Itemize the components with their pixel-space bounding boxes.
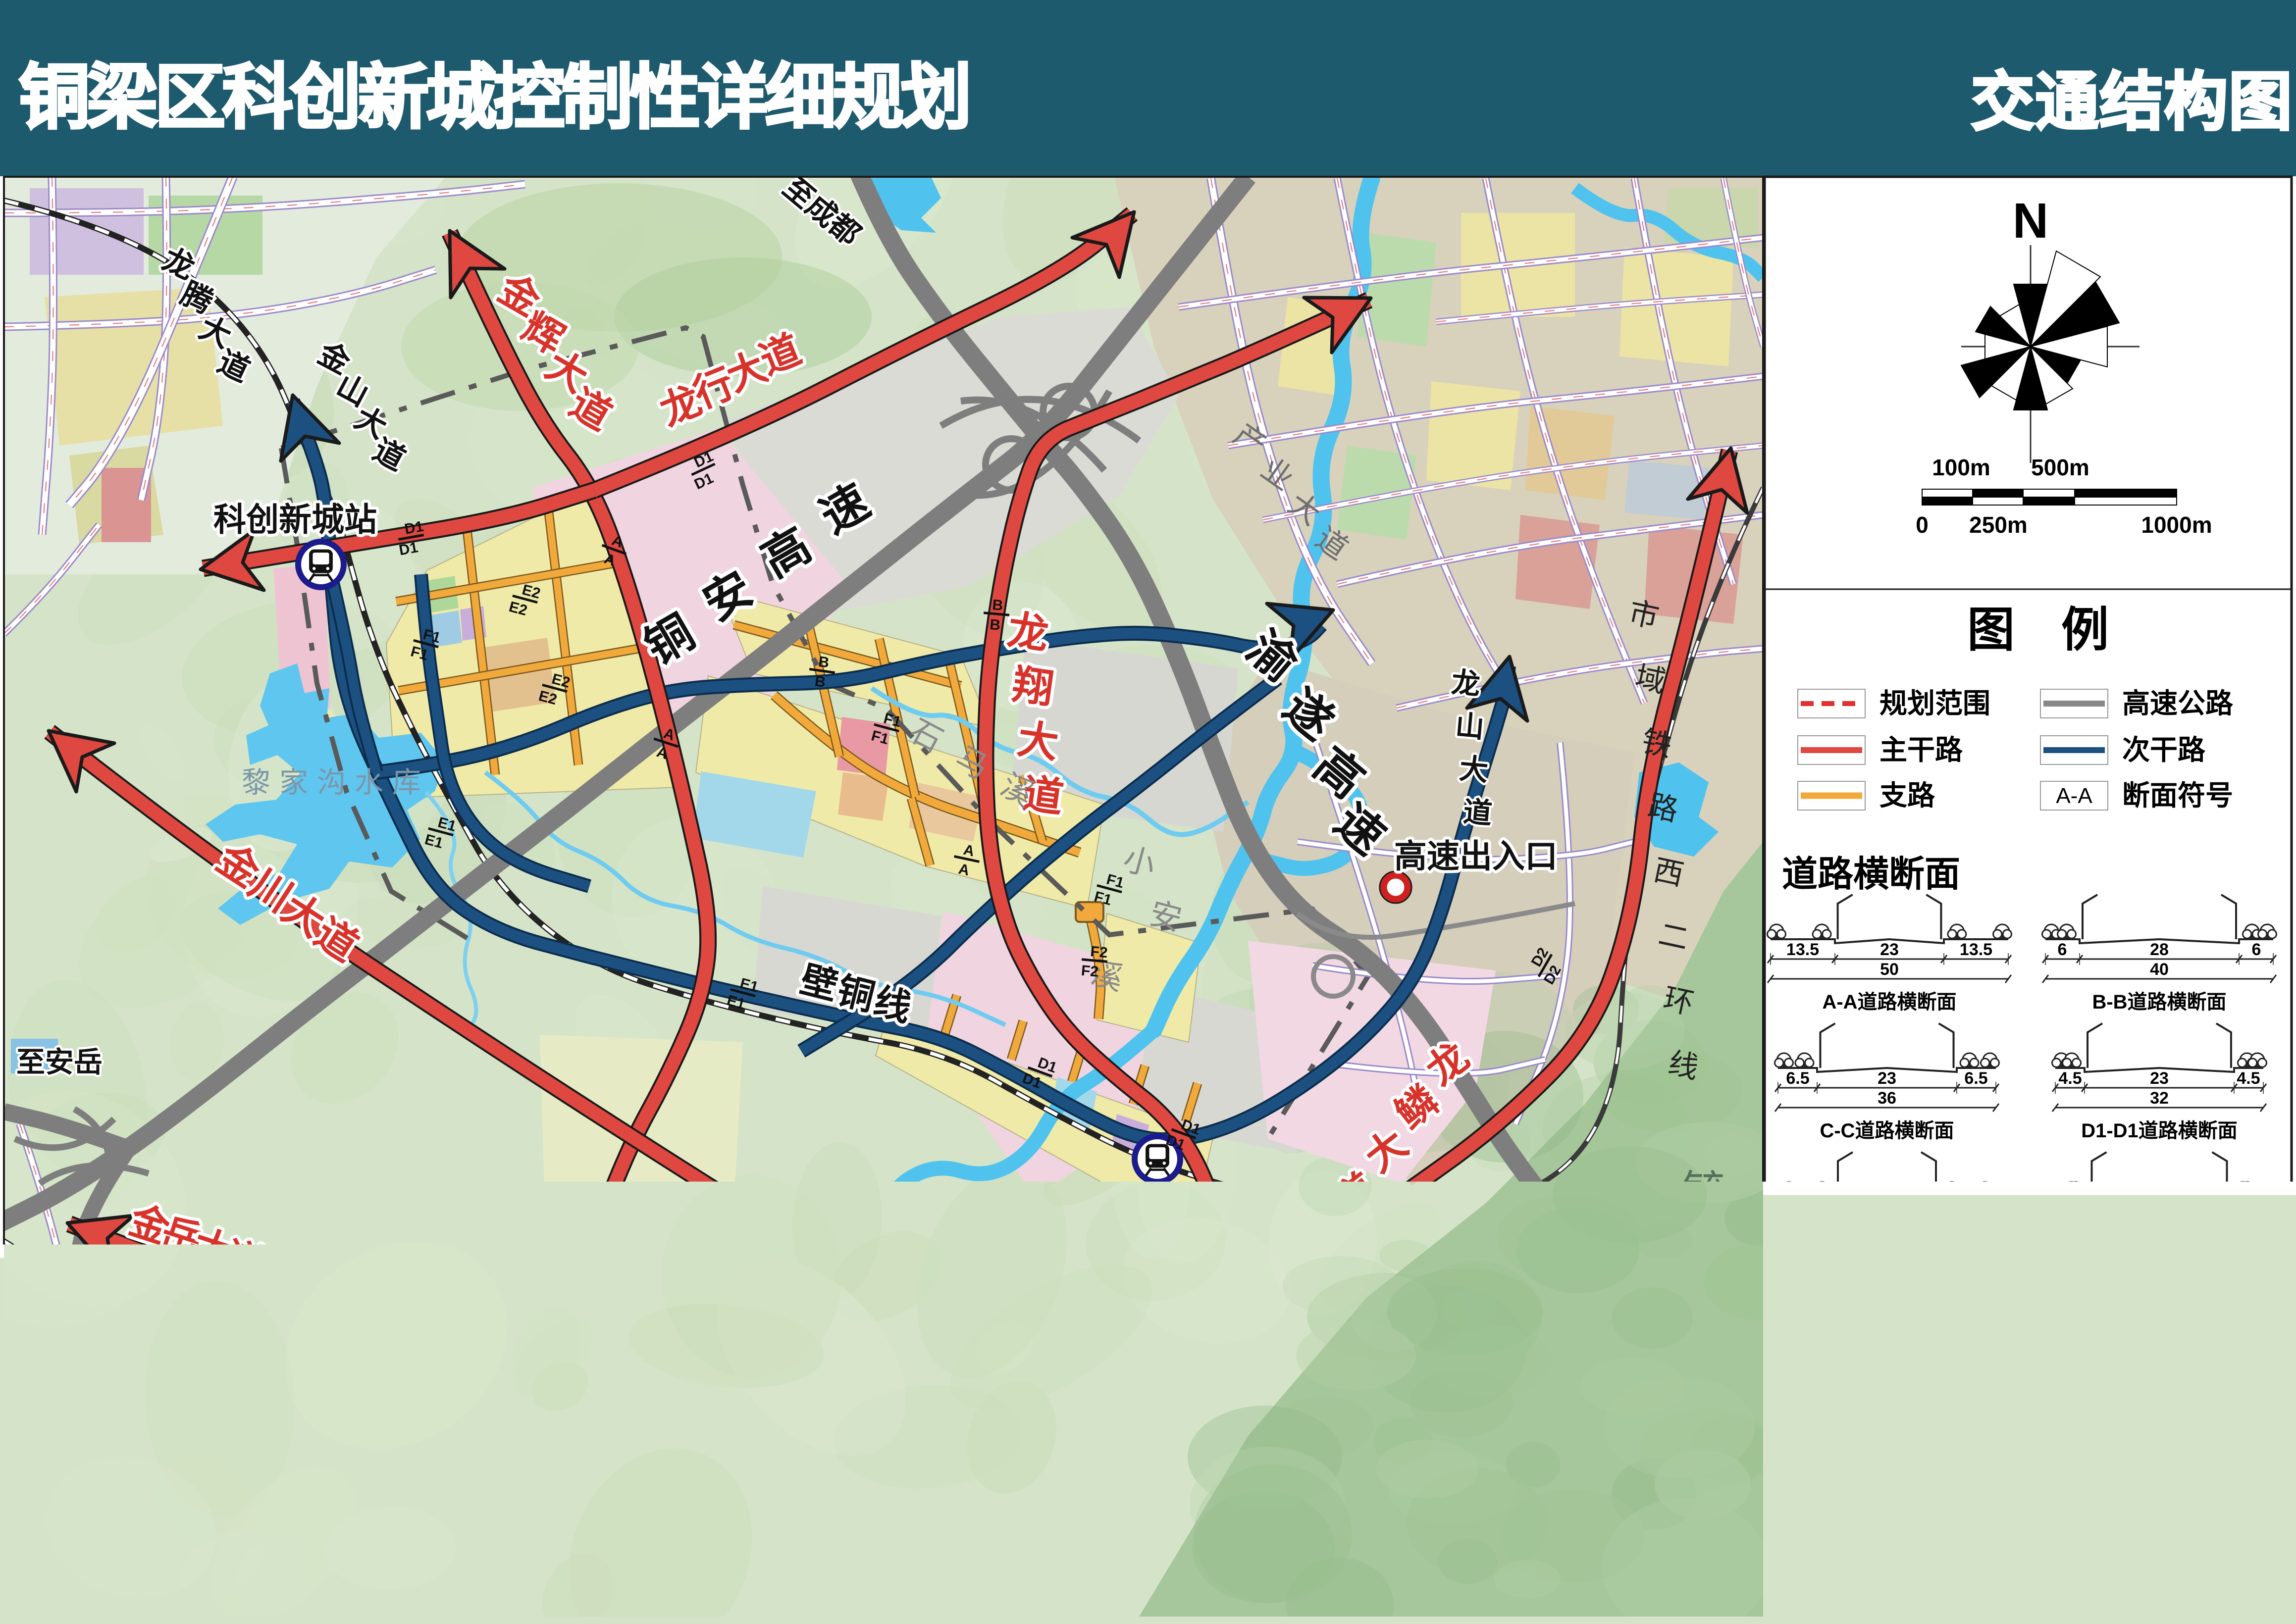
svg-text:科创新城站: 科创新城站 bbox=[213, 501, 377, 538]
svg-text:C-C道路横断面: C-C道路横断面 bbox=[1820, 1120, 1954, 1142]
svg-text:4: 4 bbox=[2147, 1320, 2157, 1339]
svg-text:50: 50 bbox=[1880, 960, 1899, 979]
svg-text:D1: D1 bbox=[403, 518, 425, 538]
svg-text:龙: 龙 bbox=[1450, 666, 1481, 701]
svg-text:18: 18 bbox=[2200, 1340, 2219, 1359]
svg-text:规划范围: 规划范围 bbox=[1879, 688, 1990, 719]
svg-text:黎家沟水库: 黎家沟水库 bbox=[242, 766, 430, 799]
svg-text:4.5: 4.5 bbox=[2237, 1069, 2260, 1088]
svg-text:山: 山 bbox=[1454, 710, 1485, 744]
svg-text:次干路: 次干路 bbox=[2122, 734, 2206, 765]
svg-text:8: 8 bbox=[1961, 1198, 1970, 1217]
svg-text:18: 18 bbox=[2150, 1198, 2169, 1217]
svg-text:18: 18 bbox=[2025, 1340, 2044, 1359]
svg-text:青: 青 bbox=[1592, 1348, 1635, 1396]
svg-text:13.5: 13.5 bbox=[1786, 940, 1819, 959]
svg-text:A-A道路横断面: A-A道路横断面 bbox=[1822, 991, 1956, 1013]
svg-text:F2-F2道路横断面: F2-F2道路横断面 bbox=[2134, 1371, 2286, 1393]
svg-text:500m: 500m bbox=[2031, 455, 2089, 480]
svg-text:D1: D1 bbox=[398, 539, 419, 558]
svg-text:4.5: 4.5 bbox=[1771, 1320, 1794, 1339]
svg-text:F2: F2 bbox=[1081, 963, 1099, 980]
svg-text:毓: 毓 bbox=[1682, 1167, 1725, 1215]
svg-text:高速出入口: 高速出入口 bbox=[1394, 838, 1558, 874]
svg-text:同康湖: 同康湖 bbox=[606, 1314, 713, 1346]
svg-text:道路横断面: 道路横断面 bbox=[1782, 855, 1960, 894]
svg-text:大学园站: 大学园站 bbox=[1090, 1192, 1220, 1229]
svg-text:B: B bbox=[817, 654, 830, 671]
svg-text:B: B bbox=[989, 616, 1001, 634]
svg-text:3: 3 bbox=[2237, 1198, 2246, 1217]
svg-text:36: 36 bbox=[1878, 1089, 1896, 1108]
svg-text:23: 23 bbox=[2150, 1069, 2169, 1088]
svg-text:主干路: 主干路 bbox=[1879, 734, 1963, 765]
svg-text:D2-D2道路横断面: D2-D2道路横断面 bbox=[1809, 1249, 1965, 1270]
svg-text:4.5: 4.5 bbox=[1908, 1320, 1931, 1339]
svg-text:B-B道路横断面: B-B道路横断面 bbox=[2092, 991, 2226, 1013]
svg-text:24: 24 bbox=[2150, 1218, 2169, 1236]
svg-text:6.5: 6.5 bbox=[1786, 1069, 1809, 1088]
svg-text:石鱼场镇: 石鱼场镇 bbox=[56, 1529, 199, 1561]
svg-text:F2: F2 bbox=[1090, 943, 1108, 961]
svg-text:翔: 翔 bbox=[1010, 662, 1056, 712]
svg-text:F1-F1道路横断面: F1-F1道路横断面 bbox=[1959, 1371, 2111, 1393]
svg-text:6: 6 bbox=[2252, 940, 2261, 959]
svg-text:23: 23 bbox=[1880, 940, 1899, 959]
svg-text:大: 大 bbox=[1015, 716, 1061, 767]
svg-text:16: 16 bbox=[1878, 1198, 1896, 1217]
svg-text:交通结构图: 交通结构图 bbox=[1971, 67, 2293, 138]
svg-text:A-A: A-A bbox=[2056, 784, 2092, 808]
svg-text:龙: 龙 bbox=[1005, 608, 1051, 658]
svg-text:6: 6 bbox=[2058, 940, 2067, 959]
svg-text:庆隆场镇: 庆隆场镇 bbox=[946, 1410, 1096, 1443]
svg-text:断面符号: 断面符号 bbox=[2122, 780, 2233, 811]
svg-text:1000m: 1000m bbox=[2141, 512, 2212, 538]
svg-text:28: 28 bbox=[2150, 940, 2169, 959]
svg-text:3: 3 bbox=[2092, 1320, 2101, 1339]
svg-text:B: B bbox=[991, 597, 1003, 614]
svg-text:D1-D1道路横断面: D1-D1道路横断面 bbox=[2081, 1120, 2238, 1142]
svg-text:山: 山 bbox=[1502, 1560, 1544, 1608]
svg-text:32: 32 bbox=[2150, 1089, 2169, 1108]
svg-text:4.5: 4.5 bbox=[2058, 1069, 2082, 1088]
svg-text:13.5: 13.5 bbox=[1960, 940, 1992, 959]
svg-text:32: 32 bbox=[1878, 1218, 1896, 1236]
svg-text:8: 8 bbox=[1804, 1198, 1814, 1217]
svg-text:图: 图 bbox=[1967, 604, 2015, 657]
svg-text:B: B bbox=[814, 673, 827, 691]
svg-text:24: 24 bbox=[1842, 1340, 1861, 1359]
svg-text:100m: 100m bbox=[1932, 455, 1990, 480]
svg-text:高速公路: 高速公路 bbox=[2122, 688, 2234, 719]
svg-text:23: 23 bbox=[1878, 1069, 1896, 1088]
svg-text:40: 40 bbox=[2150, 960, 2169, 979]
svg-text:3: 3 bbox=[1968, 1320, 1978, 1339]
svg-text:E2-E2道路横断面: E2-E2道路横断面 bbox=[1774, 1371, 1928, 1393]
svg-text:3: 3 bbox=[2073, 1198, 2082, 1217]
svg-text:N: N bbox=[2013, 193, 2048, 249]
svg-text:铜梁高铁站: 铜梁高铁站 bbox=[461, 1486, 625, 1523]
svg-text:0: 0 bbox=[1916, 512, 1929, 538]
svg-text:铜梁区科创新城控制性详细规划: 铜梁区科创新城控制性详细规划 bbox=[19, 58, 969, 137]
svg-text:至安岳: 至安岳 bbox=[16, 1046, 103, 1078]
svg-text:250m: 250m bbox=[1969, 512, 2028, 538]
svg-text:E1-E1道路横断面: E1-E1道路横断面 bbox=[2082, 1249, 2236, 1270]
svg-text:15: 15 bbox=[1842, 1320, 1861, 1339]
svg-text:10: 10 bbox=[2200, 1320, 2219, 1339]
svg-text:例: 例 bbox=[2061, 604, 2109, 657]
svg-text:大: 大 bbox=[1458, 753, 1489, 787]
svg-text:顺安爆破企业: 顺安爆破企业 bbox=[1166, 1572, 1386, 1605]
svg-text:道: 道 bbox=[1462, 796, 1493, 830]
svg-text:6.5: 6.5 bbox=[1964, 1069, 1987, 1088]
svg-text:支路: 支路 bbox=[1879, 780, 1935, 811]
svg-text:4: 4 bbox=[2263, 1320, 2273, 1339]
svg-text:12: 12 bbox=[2025, 1320, 2044, 1339]
